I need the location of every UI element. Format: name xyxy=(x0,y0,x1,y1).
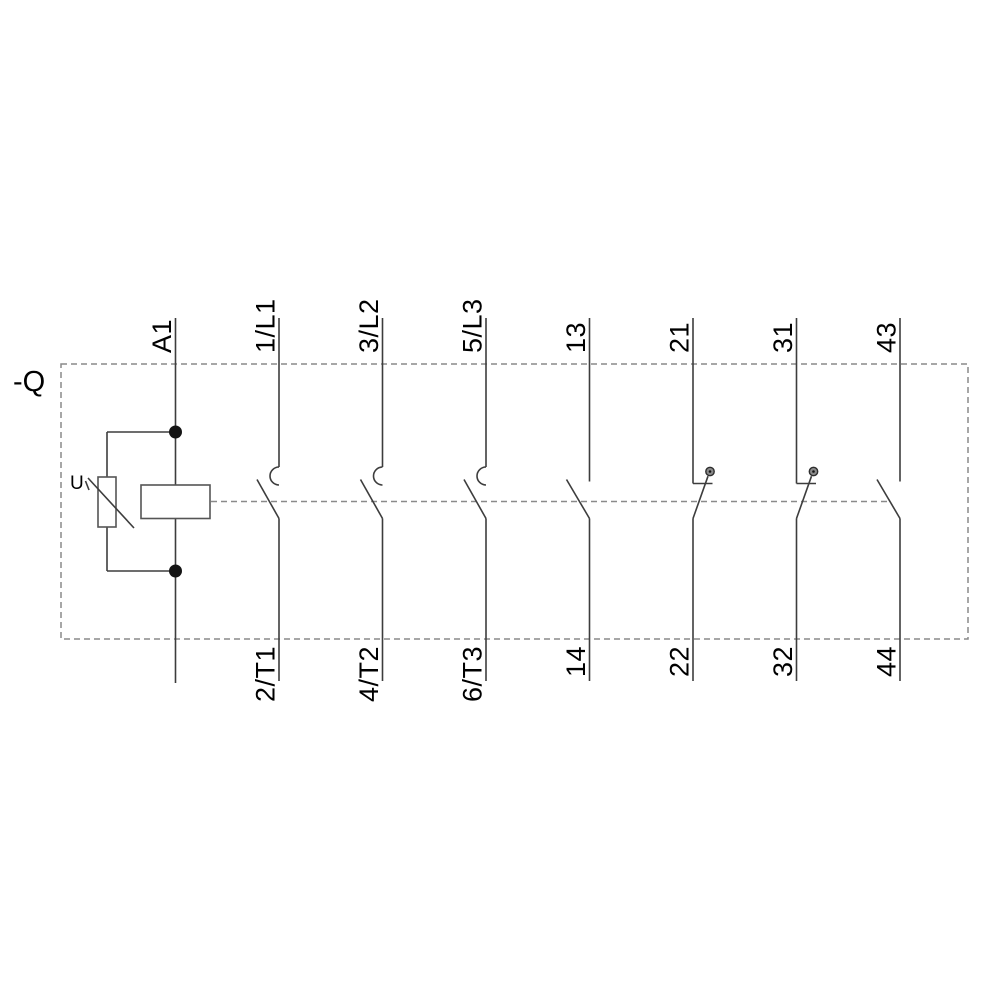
terminal-label-22: 22 xyxy=(665,646,695,677)
terminal-label-14: 14 xyxy=(561,646,591,677)
terminal-label-5l3: 5/L3 xyxy=(458,298,488,353)
aux-contact-nc-21-22: 21 22 xyxy=(665,318,715,681)
pole2-contact-blade xyxy=(361,480,383,519)
terminal-label-21: 21 xyxy=(665,322,695,353)
aux31-nc-pivot-dot xyxy=(812,470,815,473)
aux-contact-no-13-14: 13 14 xyxy=(561,318,591,681)
coil-branch: U A1 xyxy=(70,318,210,683)
pole1-fixed-contact-arc xyxy=(270,467,279,485)
terminal-label-13: 13 xyxy=(561,322,591,353)
terminal-label-4t2: 4/T2 xyxy=(354,646,384,702)
terminal-label-32: 32 xyxy=(768,646,798,677)
varistor-label: U xyxy=(70,473,84,494)
terminal-label-6t3: 6/T3 xyxy=(458,646,488,702)
terminal-label-1l1: 1/L1 xyxy=(251,298,281,353)
aux43-contact-blade xyxy=(877,480,900,519)
terminal-label-a1: A1 xyxy=(147,319,177,353)
pole1-contact-blade xyxy=(257,480,279,519)
contactor-schematic: -Q U A1 1/L1 2/T1 3/L2 4/T2 xyxy=(0,0,1000,1000)
main-contact-pole-1: 1/L1 2/T1 xyxy=(251,298,281,702)
schematic-svg: -Q U A1 1/L1 2/T1 3/L2 4/T2 xyxy=(0,0,1000,1000)
terminal-label-43: 43 xyxy=(872,322,902,353)
junction-dot-bottom xyxy=(169,565,182,578)
device-designation-label: -Q xyxy=(13,366,45,398)
aux-contact-nc-31-32: 31 32 xyxy=(768,318,818,681)
terminal-label-2t1: 2/T1 xyxy=(251,646,281,702)
coil-body xyxy=(141,485,210,519)
varistor-body xyxy=(98,477,116,527)
aux13-contact-blade xyxy=(567,480,590,519)
aux21-contact-blade xyxy=(693,476,708,518)
pole3-contact-blade xyxy=(464,480,486,519)
aux21-nc-pivot-dot xyxy=(709,470,712,473)
main-contact-pole-3: 5/L3 6/T3 xyxy=(458,298,488,702)
main-contact-pole-2: 3/L2 4/T2 xyxy=(354,298,384,702)
aux-contact-no-43-44: 43 44 xyxy=(872,318,902,681)
varistor-label-leader xyxy=(86,481,90,490)
pole2-fixed-contact-arc xyxy=(374,467,383,485)
aux31-contact-blade xyxy=(797,476,812,518)
terminal-label-44: 44 xyxy=(872,646,902,677)
terminal-label-31: 31 xyxy=(768,322,798,353)
junction-dot-top xyxy=(169,426,182,439)
terminal-label-3l2: 3/L2 xyxy=(354,298,384,353)
pole3-fixed-contact-arc xyxy=(477,467,486,485)
